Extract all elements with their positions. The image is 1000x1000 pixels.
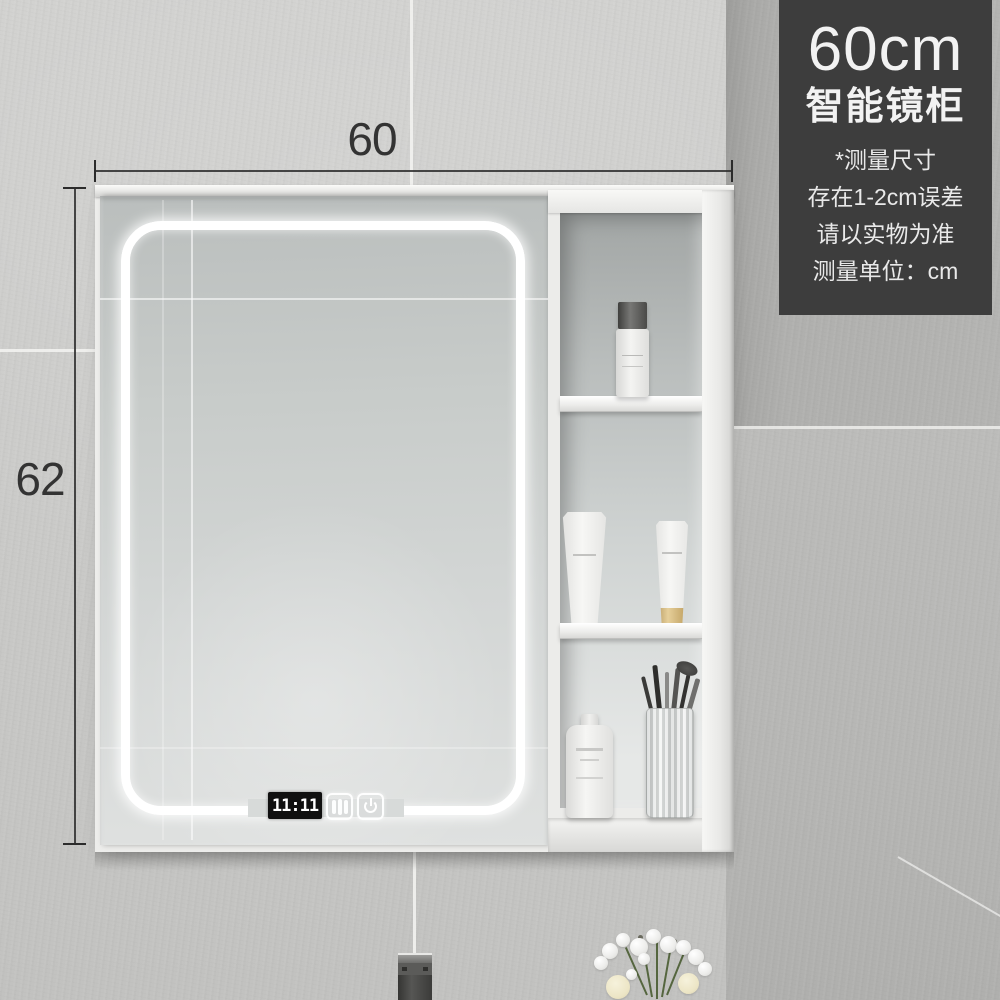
badge-size-label: 60cm — [808, 16, 964, 84]
tile-grout-line-horizontal-right — [726, 426, 1000, 429]
width-dimension-tick-right — [731, 160, 733, 182]
badge-note-line: *测量尺寸 — [808, 142, 964, 179]
flower — [638, 953, 650, 965]
pump-bottle — [566, 714, 613, 818]
faucet-top — [398, 953, 432, 963]
spray-bottle — [616, 302, 649, 397]
flower — [616, 933, 630, 947]
defogger-icon — [326, 793, 353, 820]
badge-note-line: 存在1-2cm误差 — [808, 179, 964, 216]
badge-notes: *测量尺寸 存在1-2cm误差 请以实物为准 测量单位：cm — [808, 142, 964, 290]
led-light-strip — [121, 221, 525, 815]
cabinet-shadow — [95, 852, 734, 870]
flower-bouquet — [588, 925, 723, 1000]
flower-cream-rose — [678, 973, 699, 994]
width-dimension-label: 60 — [327, 112, 417, 166]
flower-stem — [656, 937, 658, 999]
height-dimension-label: 62 — [12, 452, 68, 506]
faucet-body — [398, 975, 432, 1000]
faucet-mid — [398, 963, 432, 975]
width-dimension-tick-left — [94, 160, 96, 182]
badge-note-line: 请以实物为准 — [808, 216, 964, 253]
spray-bottle-body — [616, 329, 649, 397]
defogger-bar — [332, 800, 336, 814]
defogger-bar — [344, 800, 348, 814]
power-icon — [357, 793, 384, 820]
clock-display: 11:11 — [268, 792, 322, 819]
spray-bottle-cap — [618, 302, 647, 329]
height-dimension-line — [74, 188, 76, 845]
defogger-bar — [338, 799, 342, 815]
shelf-right-frame — [702, 190, 734, 852]
brush-cup — [646, 708, 694, 818]
info-badge: 60cm 智能镜柜 *测量尺寸 存在1-2cm误差 请以实物为准 测量单位：cm — [779, 0, 992, 315]
tube-label — [573, 554, 597, 556]
flower — [626, 969, 637, 980]
width-dimension-line — [95, 170, 733, 172]
mirror-door: 11:11 — [100, 196, 548, 845]
mirror-cabinet: 11:11 — [95, 185, 734, 852]
height-dimension-tick-bottom — [63, 843, 86, 845]
flower-cream-rose — [606, 975, 630, 999]
product-image: 60 62 11:11 — [0, 0, 1000, 1000]
flower — [698, 962, 712, 976]
tube-label — [662, 552, 682, 554]
power-glyph — [364, 800, 377, 813]
shelf — [560, 396, 702, 412]
height-dimension-tick-top — [63, 187, 86, 189]
badge-product-title: 智能镜柜 — [805, 84, 965, 130]
flower — [646, 929, 661, 944]
badge-note-line: 测量单位：cm — [808, 253, 964, 290]
shelf — [560, 623, 702, 639]
faucet — [398, 953, 432, 1000]
flower — [594, 956, 608, 970]
tile-grout-line-horizontal-left — [0, 349, 95, 352]
pump-bottle-label — [576, 748, 603, 779]
side-wall-lower-tile — [726, 429, 1000, 1000]
flower — [660, 936, 677, 953]
